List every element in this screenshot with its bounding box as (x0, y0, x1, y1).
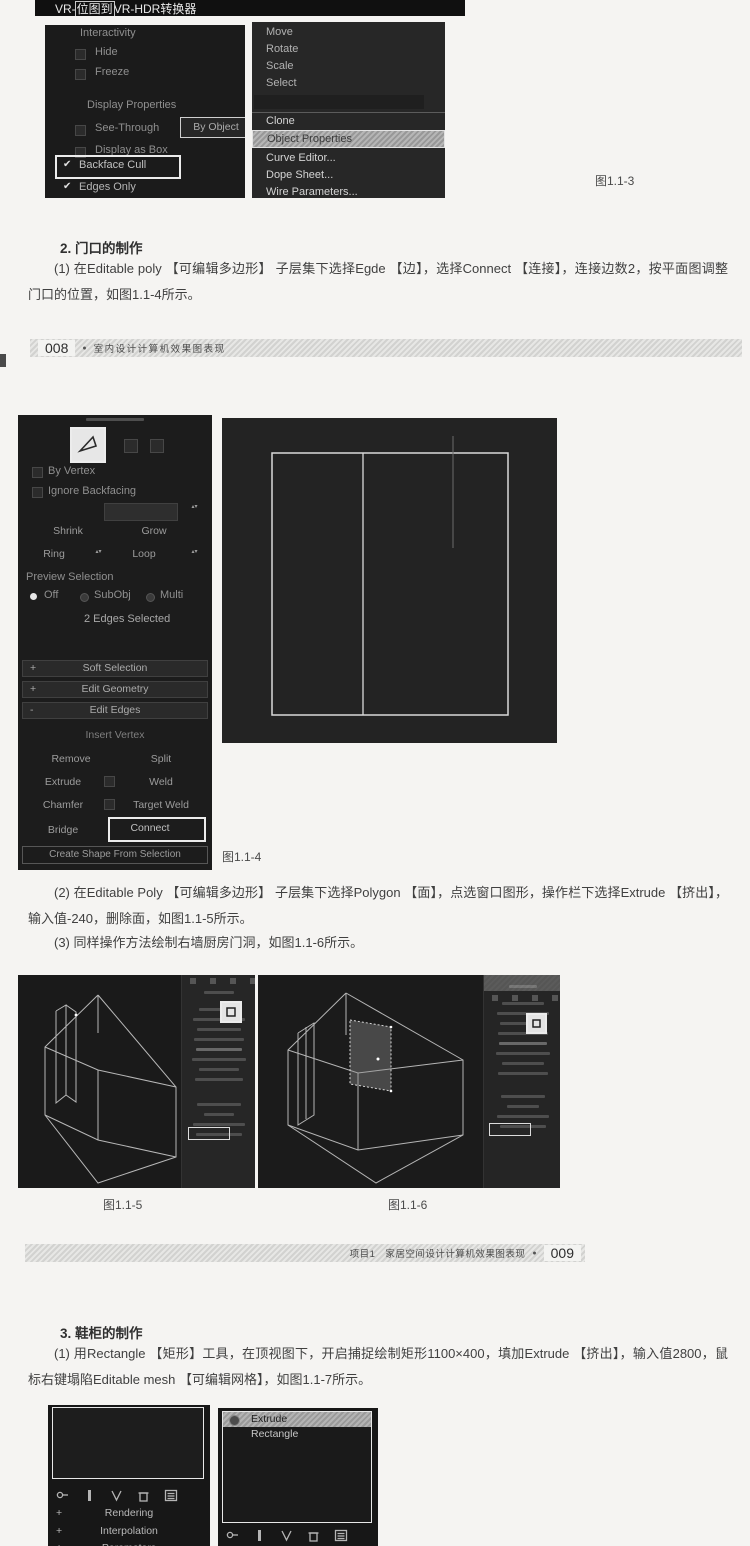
border-select-icon[interactable] (124, 439, 138, 453)
menu-item-move[interactable]: Move (252, 24, 445, 41)
figure6-command-panel (483, 975, 560, 1188)
interactivity-group-label: Interactivity (80, 27, 136, 39)
modifier-stack-toolbar (56, 1489, 179, 1502)
running-head-title: 室内设计计算机效果图表现 (94, 341, 226, 355)
running-head-title: 家居空间设计计算机效果图表现 (385, 1246, 525, 1260)
quad-menu-dim-row (254, 95, 424, 109)
section2-paragraph-2: (2) 在Editable Poly 【可编辑多边形】 子层集下选择Polygo… (28, 880, 728, 932)
freeze-checkbox[interactable] (75, 69, 86, 80)
selected-face (350, 1020, 391, 1091)
section2-paragraph-1: (1) 在Editable poly 【可编辑多边形】 子层集下选择Egde 【… (28, 256, 728, 308)
figure7-right-screenshot: Extrude Rectangle (218, 1408, 378, 1546)
figure6-screenshot (258, 975, 560, 1188)
target-weld-button[interactable]: Target Weld (118, 799, 204, 811)
polygon-select-icon[interactable] (150, 439, 164, 453)
display-properties-group-label: Display Properties (87, 99, 176, 111)
preview-off-radio[interactable]: Off (44, 589, 58, 601)
create-shape-button[interactable]: Create Shape From Selection (22, 846, 208, 864)
remove-modifier-icon[interactable] (307, 1529, 320, 1542)
edges-only-label[interactable]: Edges Only (79, 181, 136, 193)
menu-item-scale[interactable]: Scale (252, 58, 445, 75)
rollout-parameters[interactable]: + Parameters (52, 1542, 206, 1546)
radio-subobj-icon[interactable] (80, 593, 89, 602)
menu-item-clone[interactable]: Clone (252, 112, 445, 130)
header-bullet-icon: ● (532, 1250, 536, 1257)
menu-item-rotate[interactable]: Rotate (252, 41, 445, 58)
modifier-stack-toolbar (226, 1529, 349, 1542)
grow-button[interactable]: Grow (122, 525, 186, 537)
document-page: VR-位图到VR-HDR转换器 Interactivity Hide Freez… (0, 0, 750, 1546)
chapter-label: 项目1 (350, 1246, 376, 1260)
shrink-button[interactable]: Shrink (36, 525, 100, 537)
figure3-quad-menu: Move Rotate Scale Select Clone Object Pr… (252, 22, 445, 198)
figure3-properties-panel: Interactivity Hide Freeze Display Proper… (45, 25, 245, 198)
rollout-rendering[interactable]: + Rendering (52, 1507, 206, 1519)
make-unique-icon[interactable] (110, 1489, 123, 1502)
configure-modifier-sets-icon[interactable] (334, 1529, 349, 1542)
configure-modifier-sets-icon[interactable] (164, 1489, 179, 1502)
polygon-select-icon[interactable] (526, 1013, 547, 1034)
chamfer-settings-icon[interactable] (104, 799, 115, 810)
figure3-dialog-titlebar: VR-位图到VR-HDR转换器 (35, 0, 465, 16)
preview-subobj-radio[interactable]: SubObj (94, 589, 131, 601)
section2-heading: 2. 门口的制作 (60, 237, 143, 257)
ignore-backfacing-checkbox[interactable] (32, 487, 43, 498)
panel-header-texture (484, 975, 560, 991)
preview-multi-radio[interactable]: Multi (160, 589, 183, 601)
by-vertex-checkbox[interactable] (32, 467, 43, 478)
running-head-009: 项目1 家居空间设计计算机效果图表现 ● 009 (25, 1244, 585, 1262)
see-through-label[interactable]: See-Through (95, 122, 159, 134)
extrude-button[interactable]: Extrude (28, 776, 98, 788)
figure5-command-panel (181, 975, 255, 1188)
angle-value-field[interactable] (104, 503, 178, 521)
loop-spinner[interactable]: ▴▾ (190, 550, 199, 555)
modifier-stack-list: Extrude Rectangle (222, 1411, 372, 1523)
extrude-highlight-box[interactable] (489, 1123, 531, 1136)
by-object-button[interactable]: By Object (180, 117, 245, 138)
stack-item-extrude[interactable]: Extrude (223, 1412, 371, 1427)
backface-cull-check-icon: ✔ (63, 159, 71, 170)
room-wireframe (18, 975, 181, 1188)
figure3-caption: 图1.1-3 (595, 172, 634, 189)
figure4-viewport (222, 418, 557, 743)
dialog-title-text: VR-位图到VR-HDR转换器 (55, 2, 196, 16)
page-number: 009 (544, 1245, 581, 1261)
page-edge-mark (0, 354, 6, 367)
menu-item-wire-parameters[interactable]: Wire Parameters... (252, 184, 445, 198)
running-head-008: 008 ● 室内设计计算机效果图表现 (30, 339, 742, 357)
stack-item-rectangle[interactable]: Rectangle (223, 1427, 371, 1442)
menu-item-select[interactable]: Select (252, 75, 445, 92)
hide-label[interactable]: Hide (95, 46, 118, 58)
header-bullet-icon: ● (82, 345, 86, 352)
rollout-edit-geometry[interactable]: + Edit Geometry (22, 681, 208, 698)
show-end-result-icon[interactable] (83, 1489, 96, 1502)
illegible-text-line (86, 418, 144, 421)
show-end-result-icon[interactable] (253, 1529, 266, 1542)
selection-status-text: 2 Edges Selected (84, 613, 170, 625)
menu-item-dope-sheet[interactable]: Dope Sheet... (252, 167, 445, 184)
figure5-caption: 图1.1-5 (103, 1196, 142, 1213)
figure7-left-screenshot: + Rendering + Interpolation + Parameters (48, 1405, 210, 1546)
ignore-backfacing-label[interactable]: Ignore Backfacing (48, 485, 136, 497)
remove-button[interactable]: Remove (36, 753, 106, 765)
pin-stack-icon[interactable] (226, 1529, 239, 1542)
modifier-lamp-icon[interactable] (229, 1415, 240, 1426)
rollout-edit-edges[interactable]: - Edit Edges (22, 702, 208, 719)
page-number: 008 (38, 340, 75, 356)
remove-modifier-icon[interactable] (137, 1489, 150, 1502)
extrude-settings-icon[interactable] (104, 776, 115, 787)
preview-selection-label: Preview Selection (26, 571, 113, 583)
figure4-selection-panel: By Vertex Ignore Backfacing ▴▾ Shrink Gr… (18, 415, 212, 870)
chamfer-button[interactable]: Chamfer (28, 799, 98, 811)
see-through-checkbox[interactable] (75, 125, 86, 136)
modifier-stack-list (52, 1407, 204, 1479)
room-wireframe (258, 975, 483, 1188)
extrude-highlight-box[interactable] (188, 1127, 230, 1140)
split-button[interactable]: Split (126, 753, 196, 765)
radio-multi-icon[interactable] (146, 593, 155, 602)
loop-button[interactable]: Loop (122, 548, 166, 560)
connect-button[interactable]: Connect (110, 822, 190, 834)
viewport-wireframe (222, 418, 557, 743)
radio-off-selected-icon[interactable] (30, 593, 37, 600)
figure4-caption: 图1.1-4 (222, 848, 261, 865)
ring-button[interactable]: Ring (32, 548, 76, 560)
by-vertex-label[interactable]: By Vertex (48, 465, 95, 477)
insert-vertex-button[interactable]: Insert Vertex (58, 729, 172, 741)
edges-only-check-icon: ✔ (63, 181, 71, 192)
bridge-button[interactable]: Bridge (28, 824, 98, 836)
hide-checkbox[interactable] (75, 49, 86, 60)
make-unique-icon[interactable] (280, 1529, 293, 1542)
pin-stack-icon[interactable] (56, 1489, 69, 1502)
panel-mini-toolbar (492, 995, 560, 1001)
rollout-interpolation[interactable]: + Interpolation (52, 1525, 206, 1537)
edge-select-icon[interactable] (70, 427, 106, 463)
figure6-caption: 图1.1-6 (388, 1196, 427, 1213)
menu-item-curve-editor[interactable]: Curve Editor... (252, 150, 445, 167)
panel-mini-toolbar (190, 978, 255, 984)
weld-button[interactable]: Weld (126, 776, 196, 788)
section3-paragraph-1: (1) 用Rectangle 【矩形】工具，在顶视图下，开启捕捉绘制矩形1100… (28, 1341, 728, 1393)
freeze-label[interactable]: Freeze (95, 66, 129, 78)
menu-item-object-properties[interactable]: Object Properties (252, 130, 445, 148)
angle-spinner[interactable]: ▴▾ (190, 505, 199, 510)
ring-spinner[interactable]: ▴▾ (94, 550, 103, 555)
rollout-soft-selection[interactable]: + Soft Selection (22, 660, 208, 677)
section2-paragraph-3: (3) 同样操作方法绘制右墙厨房门洞，如图1.1-6所示。 (28, 930, 728, 956)
polygon-select-icon[interactable] (220, 1001, 242, 1023)
section3-heading: 3. 鞋柜的制作 (60, 1322, 143, 1342)
figure5-screenshot (18, 975, 255, 1188)
backface-cull-label[interactable]: Backface Cull (79, 159, 146, 171)
